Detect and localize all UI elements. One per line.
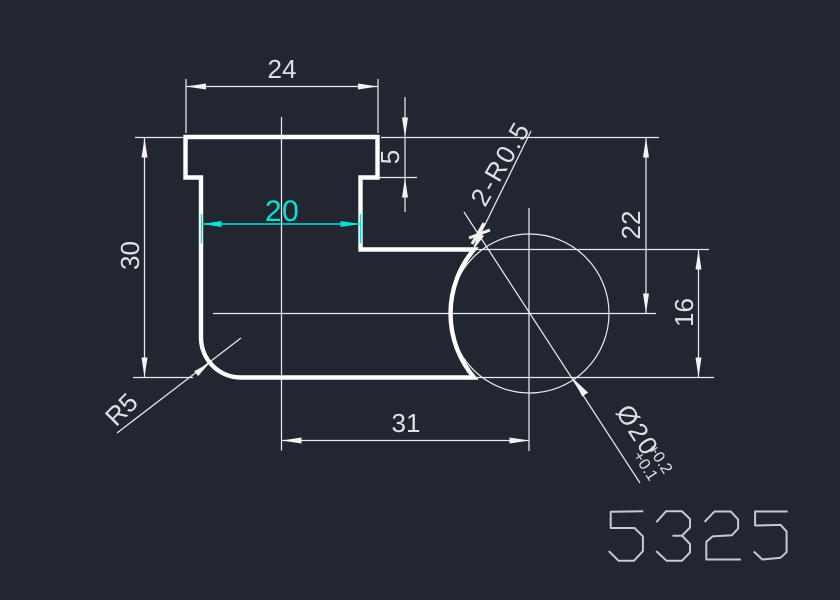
svg-text:16: 16 <box>669 298 699 327</box>
svg-text:30: 30 <box>115 241 145 270</box>
svg-text:20: 20 <box>265 195 299 228</box>
svg-text:22: 22 <box>616 211 646 240</box>
svg-text:24: 24 <box>268 54 297 84</box>
svg-text:5: 5 <box>375 150 405 164</box>
svg-text:31: 31 <box>392 408 421 438</box>
